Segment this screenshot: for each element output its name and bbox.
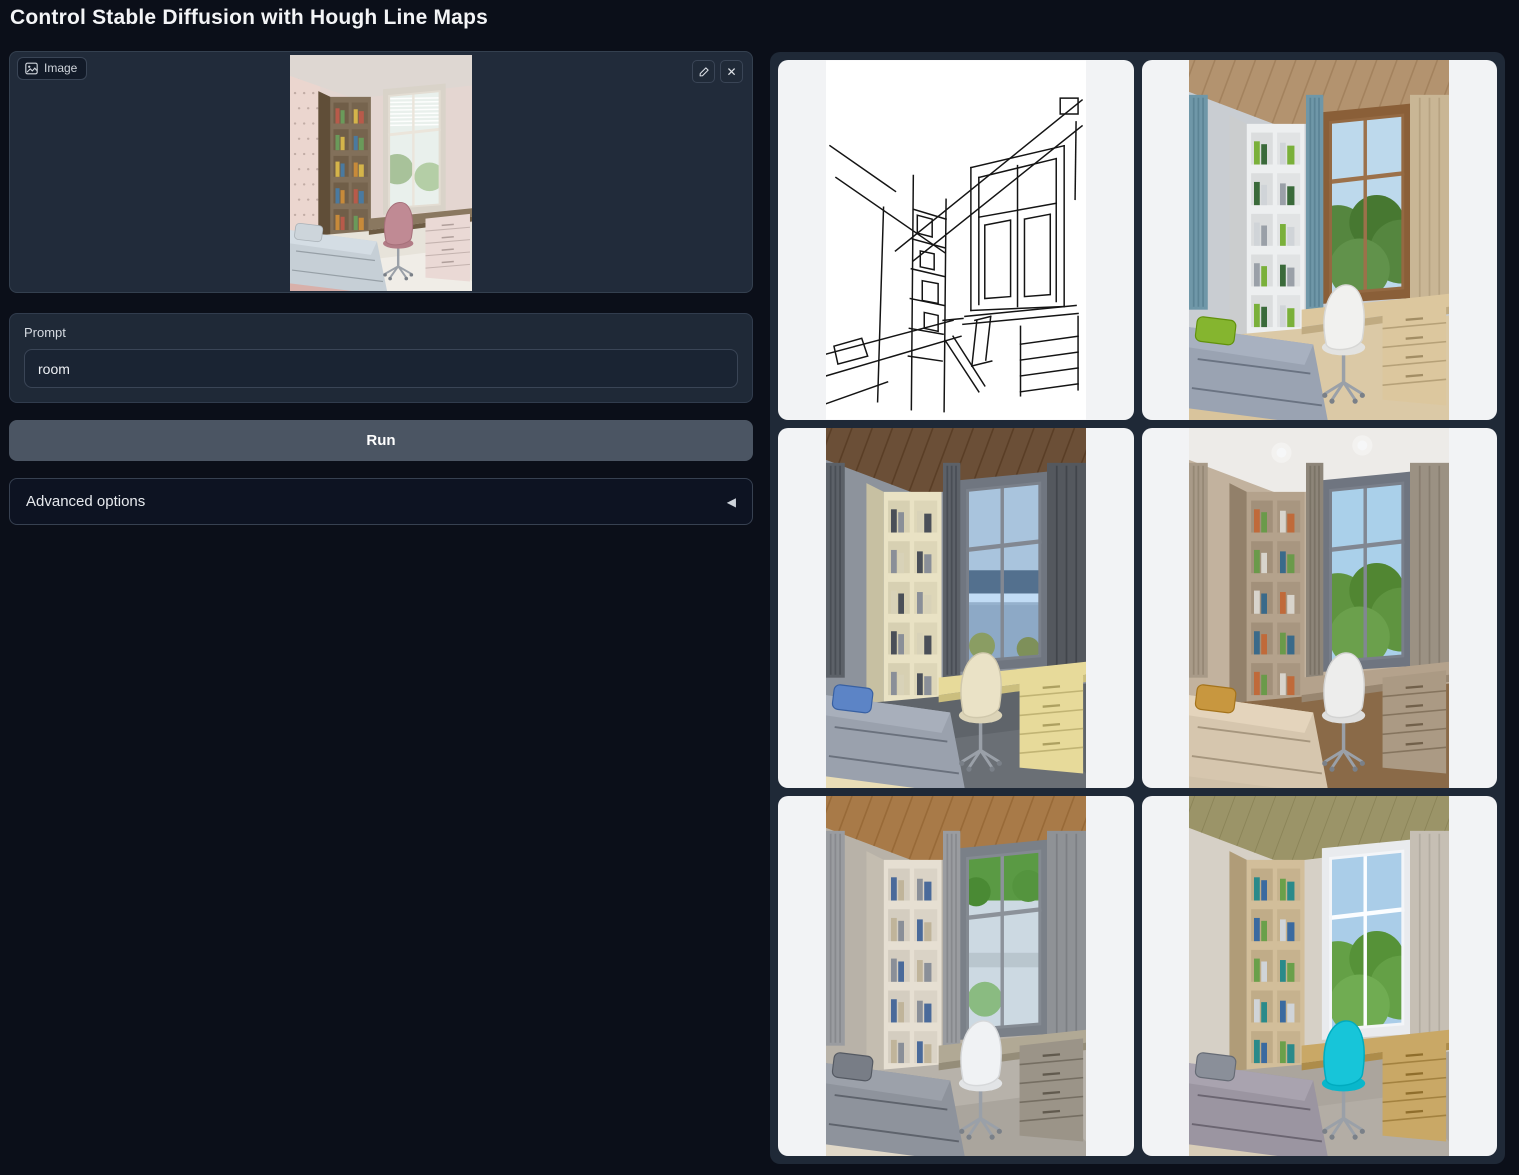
input-column: Image ✕ Prompt Run Advanced options ◀	[9, 51, 753, 1151]
image-label-badge: Image	[17, 57, 87, 80]
image-label: Image	[44, 61, 77, 75]
image-upload[interactable]: Image ✕	[9, 51, 753, 293]
clear-button[interactable]: ✕	[720, 60, 743, 83]
collapse-arrow-icon: ◀	[727, 495, 736, 509]
page-title: Control Stable Diffusion with Hough Line…	[10, 6, 488, 30]
gallery-item-generated-room-1[interactable]	[1142, 60, 1498, 420]
gallery-item-generated-room-5[interactable]	[1142, 796, 1498, 1156]
prompt-panel: Prompt	[9, 313, 753, 403]
image-toolbar: ✕	[692, 60, 743, 83]
run-button[interactable]: Run	[9, 420, 753, 461]
edit-button[interactable]	[692, 60, 715, 83]
gallery-item-generated-room-2[interactable]	[778, 428, 1134, 788]
close-icon: ✕	[726, 65, 736, 79]
output-gallery	[770, 52, 1505, 1164]
prompt-label: Prompt	[24, 325, 738, 340]
gallery-item-generated-room-3[interactable]	[1142, 428, 1498, 788]
gallery-item-generated-room-4[interactable]	[778, 796, 1134, 1156]
accordion-label: Advanced options	[26, 493, 145, 510]
prompt-input[interactable]	[24, 349, 738, 388]
gallery-item-hough-line-map[interactable]	[778, 60, 1134, 420]
pencil-icon	[698, 66, 710, 78]
advanced-options-accordion[interactable]: Advanced options ◀	[9, 478, 753, 525]
image-icon	[25, 62, 38, 75]
uploaded-image-thumbnail	[290, 55, 472, 291]
